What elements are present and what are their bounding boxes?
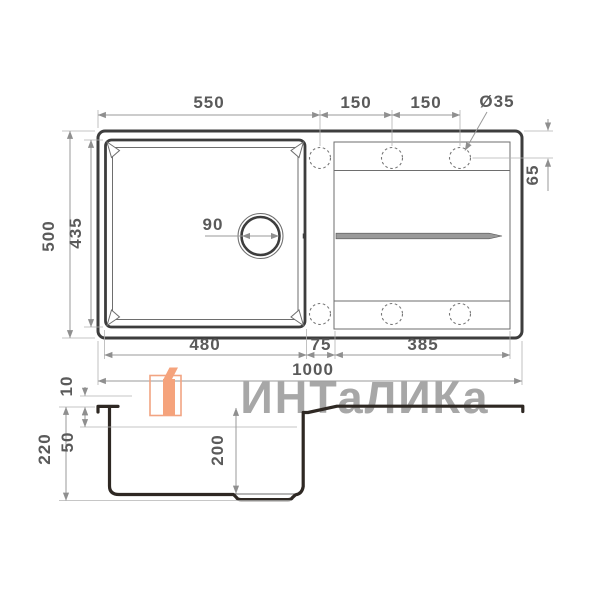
dim-divider-width: 75: [311, 335, 332, 354]
drawing-canvas: 90 550 150 150 Ø35 65: [0, 0, 600, 600]
drainboard-groove: [336, 233, 502, 239]
dim-total-height: 220: [35, 433, 54, 464]
dim-rim-height: 10: [57, 376, 76, 397]
watermark: ИНТаЛИКа: [150, 368, 490, 424]
dim-hole-edge-offset: 65: [523, 165, 542, 186]
dim-bowl-width: 480: [189, 335, 220, 354]
dim-hole-pitch-1: 150: [340, 93, 371, 112]
dim-ledge-depth: 50: [58, 432, 77, 453]
dim-bowl-depth: 200: [208, 434, 227, 465]
dim-overall-depth: 500: [39, 220, 58, 251]
brand-logo-bar: [163, 379, 175, 416]
watermark-text: ИНТаЛИКа: [240, 372, 489, 423]
sink-technical-drawing: 90 550 150 150 Ø35 65: [0, 0, 600, 600]
dim-hole-pitch-2: 150: [410, 93, 441, 112]
dim-hole-diameter: Ø35: [479, 92, 514, 111]
brand-logo-flag: [163, 368, 178, 381]
top-view: 90: [98, 131, 522, 338]
dim-top-width: 550: [193, 93, 224, 112]
dim-bowl-depth-outer: 435: [66, 217, 85, 248]
dim-drain-diameter: 90: [203, 215, 224, 234]
dim-drainboard-width: 385: [407, 335, 438, 354]
